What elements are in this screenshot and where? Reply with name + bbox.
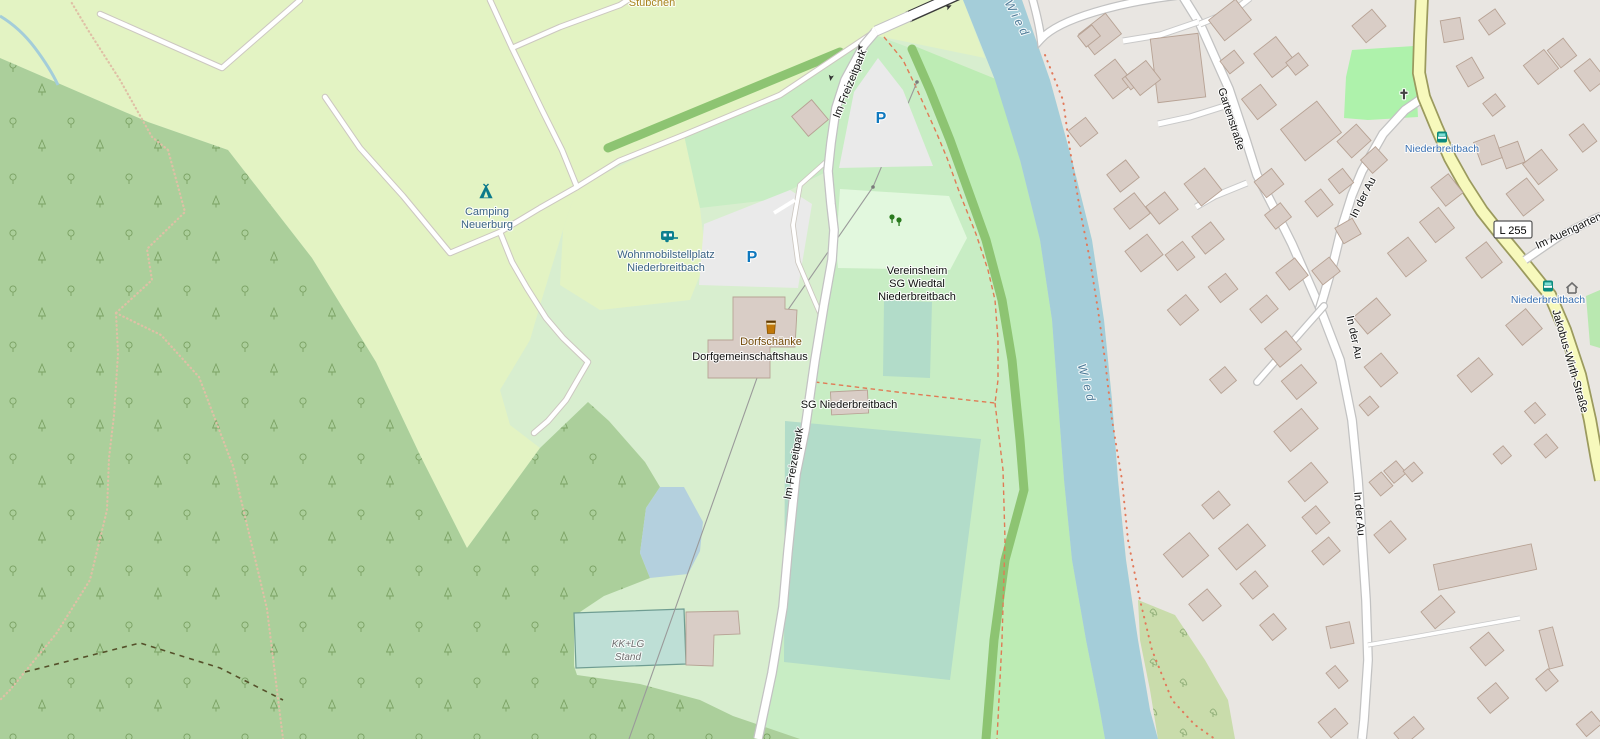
svg-text:Wohnmobilstellplatz: Wohnmobilstellplatz — [617, 249, 715, 261]
svg-text:Camping: Camping — [465, 206, 509, 218]
svg-text:Niederbreitbach: Niederbreitbach — [1405, 143, 1479, 155]
svg-text:✝: ✝ — [1399, 87, 1410, 102]
svg-text:Niederbreitbach: Niederbreitbach — [627, 262, 705, 274]
svg-text:P: P — [747, 249, 758, 266]
svg-text:Stand: Stand — [615, 652, 642, 663]
svg-text:Vereinsheim: Vereinsheim — [887, 265, 948, 277]
svg-text:Neuerburg: Neuerburg — [461, 219, 513, 231]
svg-text:P: P — [876, 110, 887, 127]
svg-text:Stübchen: Stübchen — [629, 0, 675, 9]
svg-text:Dorfgemeinschaftshaus: Dorfgemeinschaftshaus — [692, 351, 808, 363]
svg-text:SG Wiedtal: SG Wiedtal — [889, 278, 945, 290]
svg-text:Niederbreitbach: Niederbreitbach — [1511, 294, 1585, 306]
svg-text:L 255: L 255 — [1499, 225, 1526, 237]
svg-text:Niederbreitbach: Niederbreitbach — [878, 291, 956, 303]
svg-text:Dorfschänke: Dorfschänke — [740, 336, 802, 348]
svg-text:SG Niederbreitbach: SG Niederbreitbach — [801, 399, 898, 411]
svg-text:KK+LG: KK+LG — [612, 639, 645, 650]
